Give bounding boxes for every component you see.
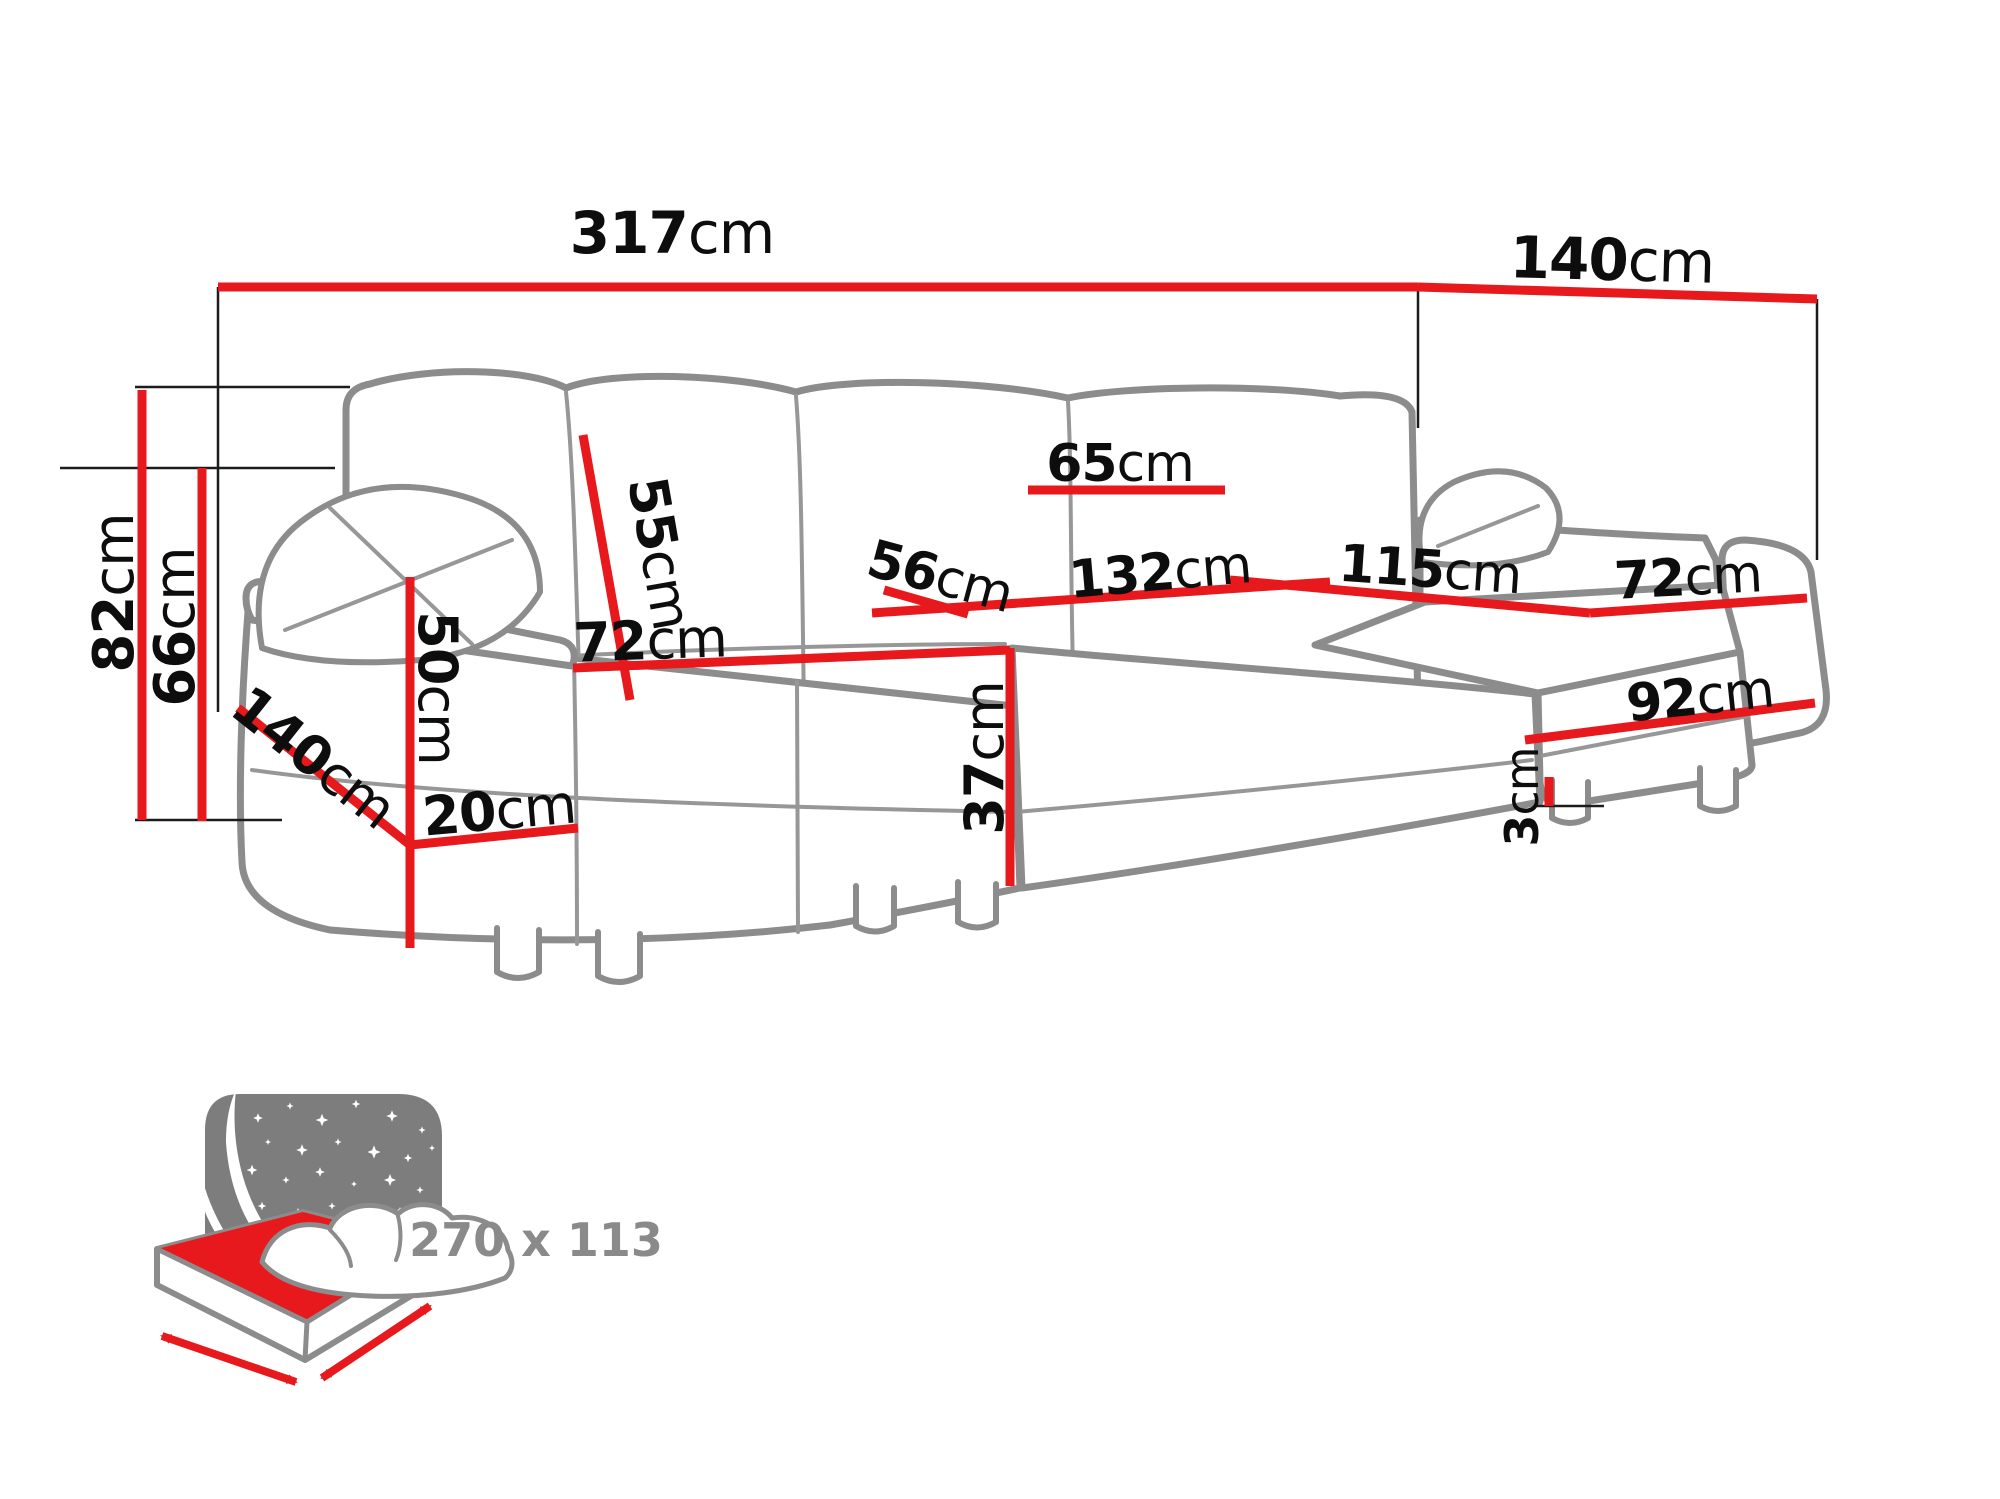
sofa-foot bbox=[598, 932, 640, 982]
sofa-foot bbox=[1552, 780, 1588, 823]
dim-label-base-height: 20cm bbox=[420, 772, 578, 848]
dim-label-right-seat-length: 115cm bbox=[1337, 534, 1524, 607]
sleeping-area-label: 270 x 113 bbox=[409, 1213, 663, 1267]
dim-label-leg-height: 3cm bbox=[1495, 747, 1549, 846]
sofa-foot bbox=[497, 928, 539, 978]
dim-label-right-depth: 140cm bbox=[1509, 223, 1715, 297]
dim-label-arm-panel-height: 50cm bbox=[407, 611, 470, 764]
sofa-dimension-diagram: 317cm 140cm 82cm 66cm 55cm 65cm 56cm 132… bbox=[0, 0, 2000, 1499]
dim-label-total-width: 317cm bbox=[570, 199, 774, 267]
sofa-drawing bbox=[240, 372, 1826, 982]
sofa-foot bbox=[1700, 768, 1736, 811]
dim-label-back-cushion-width: 65cm bbox=[1046, 434, 1194, 494]
sofa-foot bbox=[856, 886, 894, 932]
dim-label-left-seat-width: 72cm bbox=[572, 606, 728, 674]
dim-label-total-height: 82cm bbox=[82, 513, 147, 672]
sleeper-function-icon: 270 x 113 bbox=[157, 1090, 663, 1382]
diagram-canvas: 317cm 140cm 82cm 66cm 55cm 65cm 56cm 132… bbox=[0, 0, 2000, 1499]
dim-label-right-seat-width: 72cm bbox=[1613, 544, 1764, 612]
sofa-foot bbox=[958, 882, 996, 928]
dim-label-armrest-height: 66cm bbox=[143, 547, 208, 706]
dim-label-seat-height: 37cm bbox=[953, 681, 1016, 834]
